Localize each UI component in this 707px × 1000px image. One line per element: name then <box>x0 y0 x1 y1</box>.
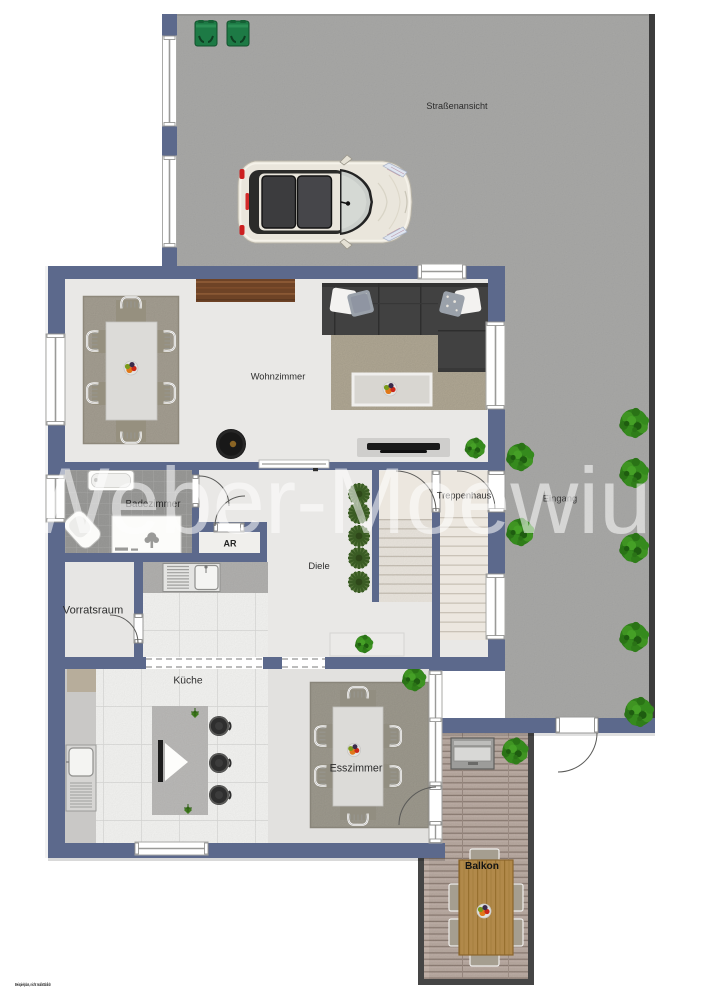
svg-text:Diele: Diele <box>308 560 329 571</box>
svg-text:Küche: Küche <box>173 676 202 687</box>
svg-text:Balkon: Balkon <box>465 861 499 872</box>
svg-text:Vorratsraum: Vorratsraum <box>63 605 123 617</box>
svg-text:Wohnzimmer: Wohnzimmer <box>251 372 306 382</box>
svg-text:Straßenansicht: Straßenansicht <box>426 101 488 111</box>
svg-text:Beispielplan, nicht maßstäblic: Beispielplan, nicht maßstäblich <box>15 982 51 987</box>
svg-text:Weber-Moewiu: Weber-Moewiu <box>21 448 651 553</box>
svg-text:Esszimmer: Esszimmer <box>330 763 383 775</box>
